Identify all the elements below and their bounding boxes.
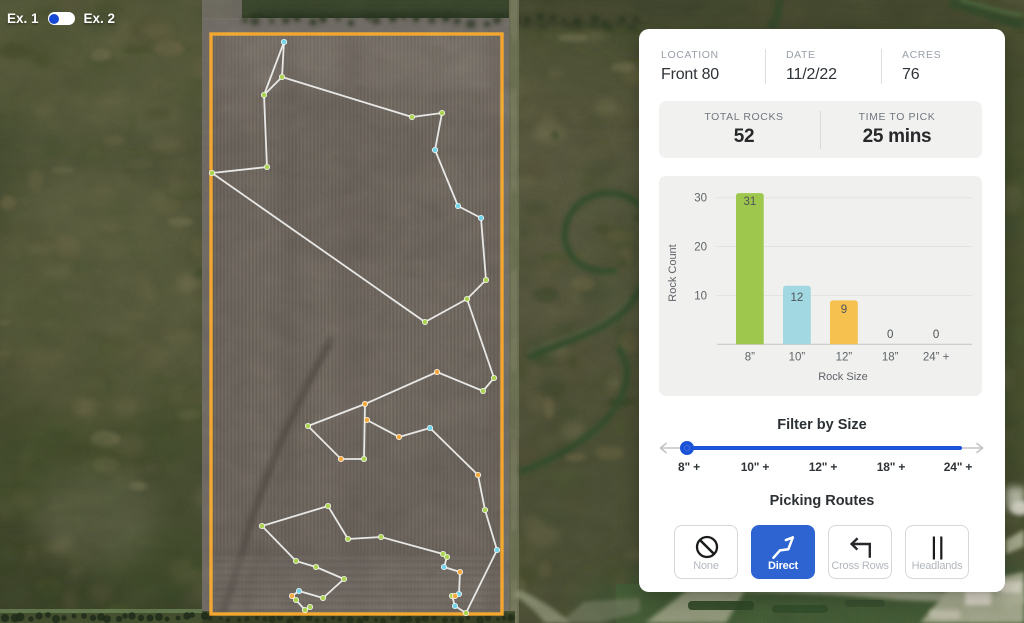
svg-text:24” +: 24” + [923,352,950,364]
svg-text:30: 30 [694,193,707,205]
svg-text:31: 31 [744,196,757,208]
svg-text:10: 10 [694,290,707,302]
svg-text:20: 20 [694,241,707,253]
svg-text:Rock Size: Rock Size [818,371,868,383]
svg-text:18”: 18” [882,352,899,364]
svg-text:12”: 12” [836,352,853,364]
svg-text:Rock Count: Rock Count [667,244,679,301]
svg-text:9: 9 [841,304,847,316]
svg-text:0: 0 [887,329,893,341]
svg-text:8”: 8” [745,352,755,364]
svg-text:10”: 10” [789,352,806,364]
svg-text:0: 0 [933,329,939,341]
svg-text:12: 12 [791,292,804,304]
